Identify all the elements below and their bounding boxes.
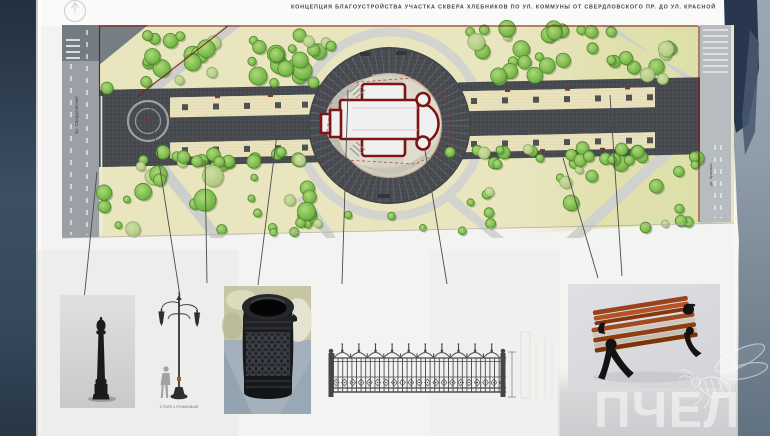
svg-text:ул. Красная: ул. Красная bbox=[709, 163, 713, 186]
svg-text:СТОЛБ 2-РОЖКОВЫЙ: СТОЛБ 2-РОЖКОВЫЙ bbox=[160, 405, 199, 409]
svg-text:КОНЦЕПЦИЯ БЛАГОУСТРОЙСТВА УЧАС: КОНЦЕПЦИЯ БЛАГОУСТРОЙСТВА УЧАСТКА СКВЕРА… bbox=[291, 3, 716, 11]
svg-text:пр. Свердловский: пр. Свердловский bbox=[74, 96, 79, 134]
svg-text:ПЧЕЛ: ПЧЕЛ bbox=[594, 381, 740, 436]
